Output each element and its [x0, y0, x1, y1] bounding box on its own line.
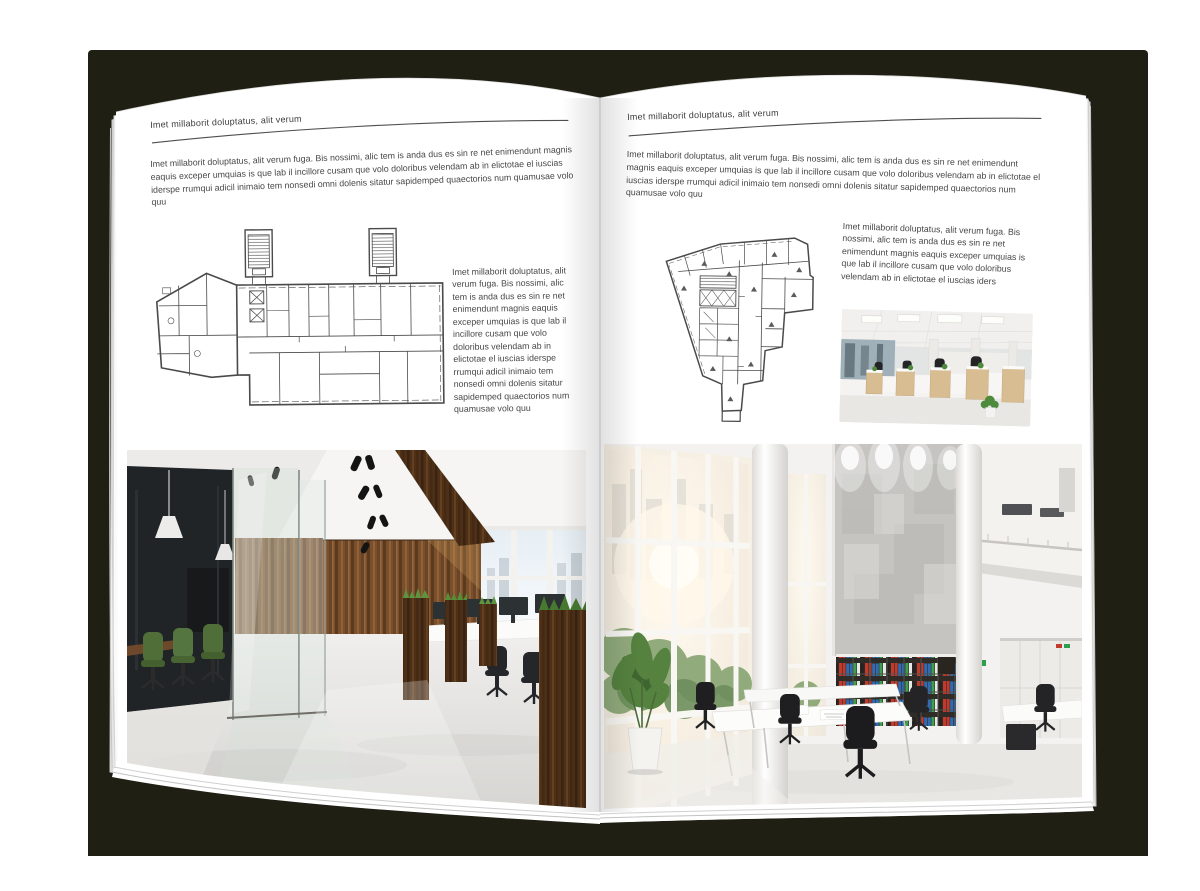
- right-page-caption: Imet millaborit doluptatus, alit verum f…: [841, 220, 1039, 289]
- printer: [1006, 724, 1036, 750]
- stair-towers: [245, 228, 397, 285]
- right-page-intro: Imet millaborit doluptatus, alit verum f…: [626, 148, 1043, 209]
- concrete-wall: [832, 444, 972, 656]
- floor-plan-left: [148, 223, 450, 424]
- column: [752, 444, 788, 822]
- office-photo-right: [604, 444, 1082, 822]
- floor-plan-right: [642, 215, 840, 426]
- brochure-mockup: Imet millaborit doluptatus, alit verum I…: [0, 0, 1200, 891]
- left-page-caption: Imet millaborit doluptatus, alit verum f…: [452, 264, 576, 416]
- meeting-room: [127, 466, 235, 712]
- green-chairs: [141, 624, 225, 690]
- office-photo-left: [127, 450, 586, 815]
- main-block: [237, 283, 444, 405]
- office-photo-small: [839, 309, 1033, 427]
- left-wing: [157, 273, 238, 378]
- stair-core: [700, 276, 736, 289]
- round-column: [956, 444, 982, 744]
- mezzanine: [972, 444, 1082, 588]
